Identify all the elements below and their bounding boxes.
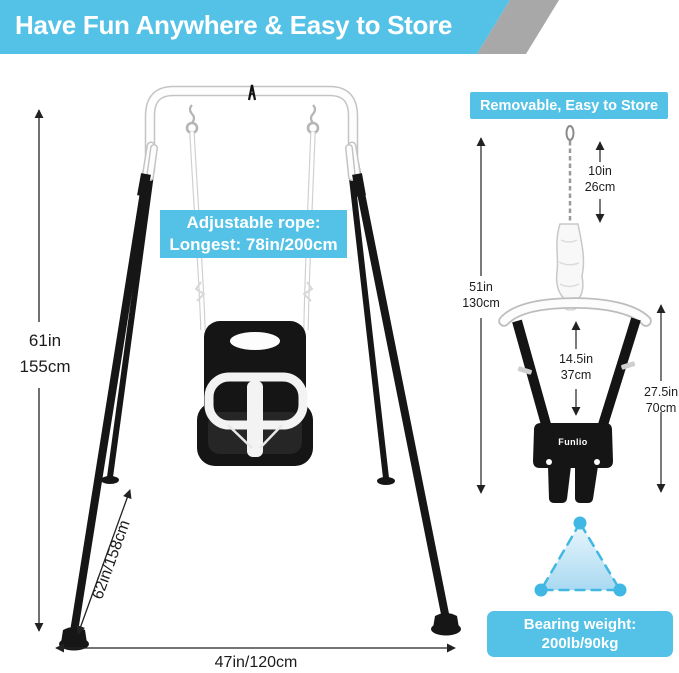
bearing-weight-label: Bearing weight: 200lb/90kg (487, 611, 673, 657)
rope-label-line2: Longest: 78in/200cm (169, 234, 337, 256)
s-hooks (187, 105, 318, 133)
height-dimension-label: 61in 155cm (19, 328, 70, 380)
side-height-inches: 27.5in (644, 384, 678, 400)
total-height-cm: 130cm (462, 295, 500, 311)
removable-header-text: Removable, Easy to Store (480, 98, 658, 114)
height-inches: 61in (19, 328, 70, 354)
removable-header: Removable, Easy to Store (470, 92, 668, 119)
base-width-label: 47in/120cm (215, 654, 298, 672)
product-infographic: Have Fun Anywhere & Easy to Store Adjust… (0, 0, 679, 673)
rope-label-line1: Adjustable rope: (186, 212, 320, 234)
strap-drop-cm: 37cm (559, 367, 593, 383)
rope-length-label: Adjustable rope: Longest: 78in/200cm (160, 210, 347, 258)
total-height-label: 51in 130cm (462, 279, 500, 311)
chain-inches: 10in (585, 163, 616, 179)
chain-dimension-label: 10in 26cm (585, 163, 616, 195)
jumper-seat (533, 423, 613, 503)
left-strap (517, 321, 547, 428)
side-height-cm: 70cm (644, 400, 678, 416)
banner-title: Have Fun Anywhere & Easy to Store (15, 10, 452, 41)
swing-seat (197, 321, 313, 466)
height-cm: 155cm (19, 354, 70, 380)
right-strap (602, 319, 636, 428)
brand-logo: Funlio (558, 437, 587, 447)
chain-cm: 26cm (585, 179, 616, 195)
total-height-inches: 51in (462, 279, 500, 295)
strap-drop-inches: 14.5in (559, 351, 593, 367)
stability-triangle (535, 517, 627, 597)
bearing-line2: 200lb/90kg (542, 634, 619, 653)
bearing-line1: Bearing weight: (524, 615, 637, 634)
side-height-label: 27.5in 70cm (644, 384, 678, 416)
strap-drop-label: 14.5in 37cm (559, 351, 593, 383)
